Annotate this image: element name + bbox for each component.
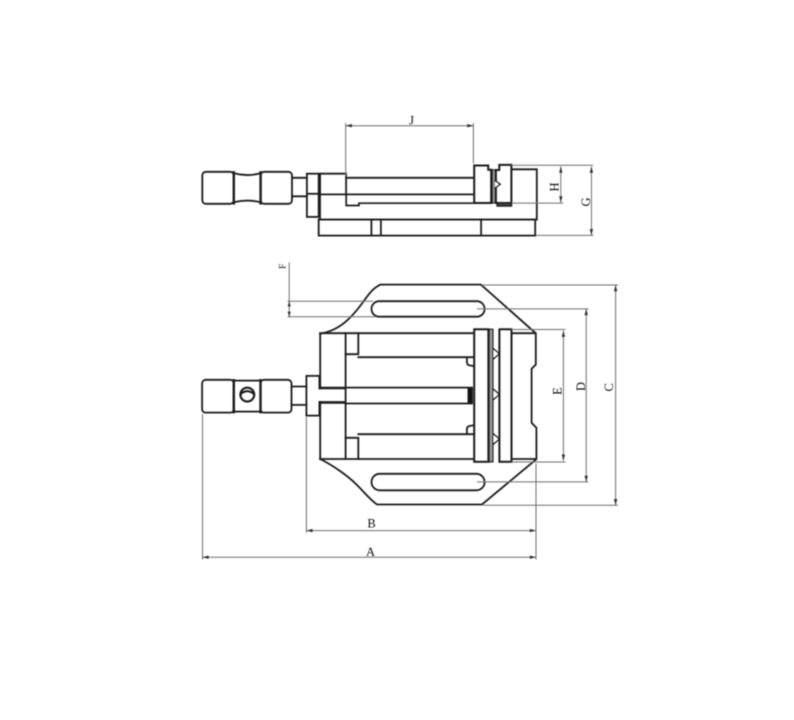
svg-text:J: J [409, 113, 414, 127]
svg-text:C: C [602, 383, 616, 391]
svg-text:F: F [278, 264, 288, 269]
svg-text:G: G [579, 197, 593, 206]
svg-text:H: H [548, 182, 562, 191]
svg-text:D: D [574, 382, 588, 391]
svg-text:A: A [366, 545, 375, 559]
svg-text:B: B [367, 517, 375, 531]
svg-text:E: E [551, 387, 565, 395]
